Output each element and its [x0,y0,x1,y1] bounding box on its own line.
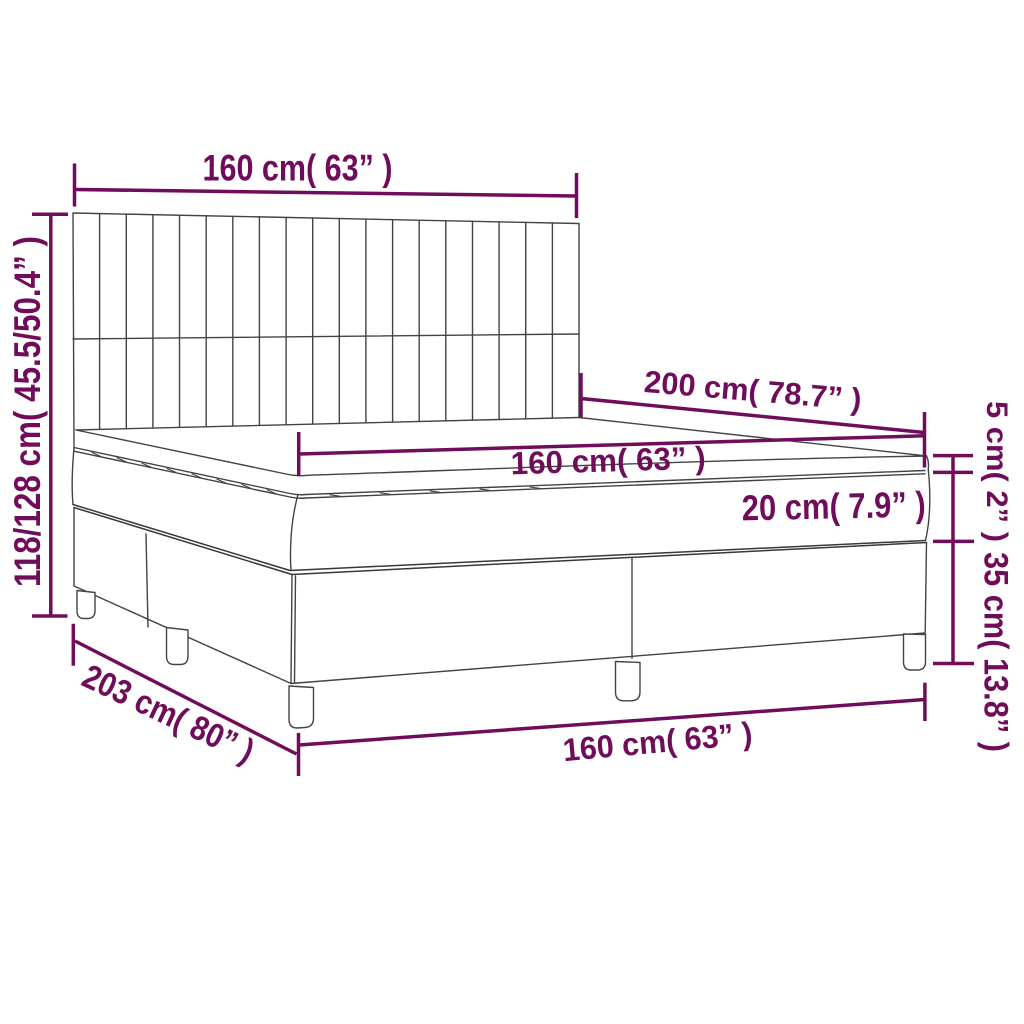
svg-text:5 cm( 2” ): 5 cm( 2” ) [980,401,1013,542]
svg-text:160 cm( 63” ): 160 cm( 63” ) [203,147,393,188]
svg-text:118/128 cm( 45.5/50.4” ): 118/128 cm( 45.5/50.4” ) [7,236,48,587]
svg-text:20 cm( 7.9” ): 20 cm( 7.9” ) [741,484,926,529]
svg-text:35 cm( 13.8” ): 35 cm( 13.8” ) [977,552,1015,752]
svg-text:160 cm( 63” ): 160 cm( 63” ) [510,440,706,482]
